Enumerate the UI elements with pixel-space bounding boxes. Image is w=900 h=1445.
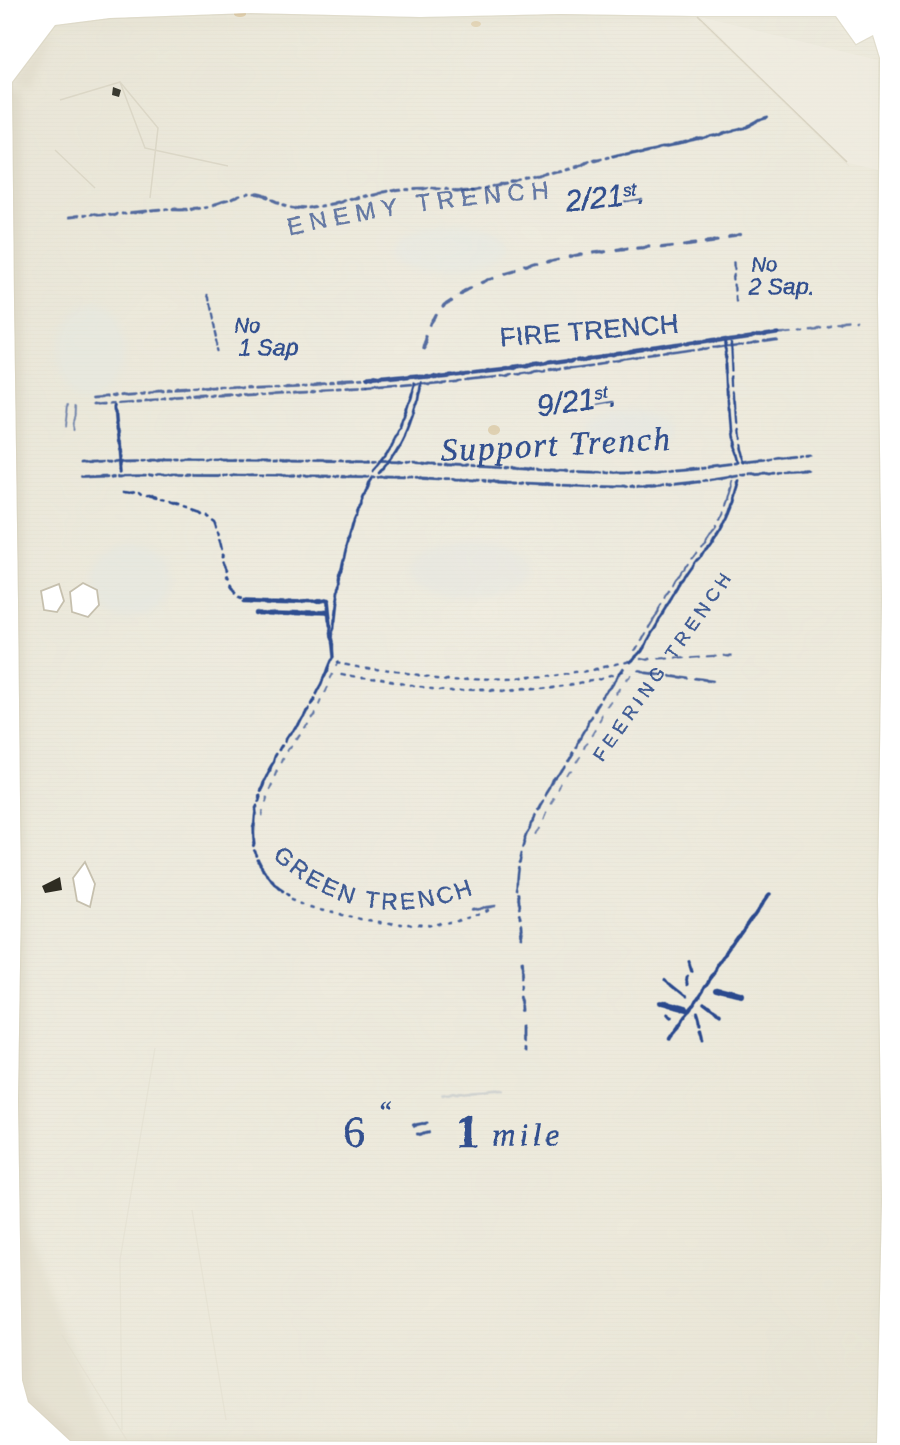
svg-text:1 Sap: 1 Sap (238, 334, 298, 360)
svg-text:“: “ (377, 1096, 392, 1126)
svg-text:1: 1 (455, 1105, 479, 1158)
svg-text:mile: mile (492, 1116, 563, 1152)
svg-text:2 Sap.: 2 Sap. (747, 273, 815, 299)
svg-text:6: 6 (343, 1109, 365, 1156)
